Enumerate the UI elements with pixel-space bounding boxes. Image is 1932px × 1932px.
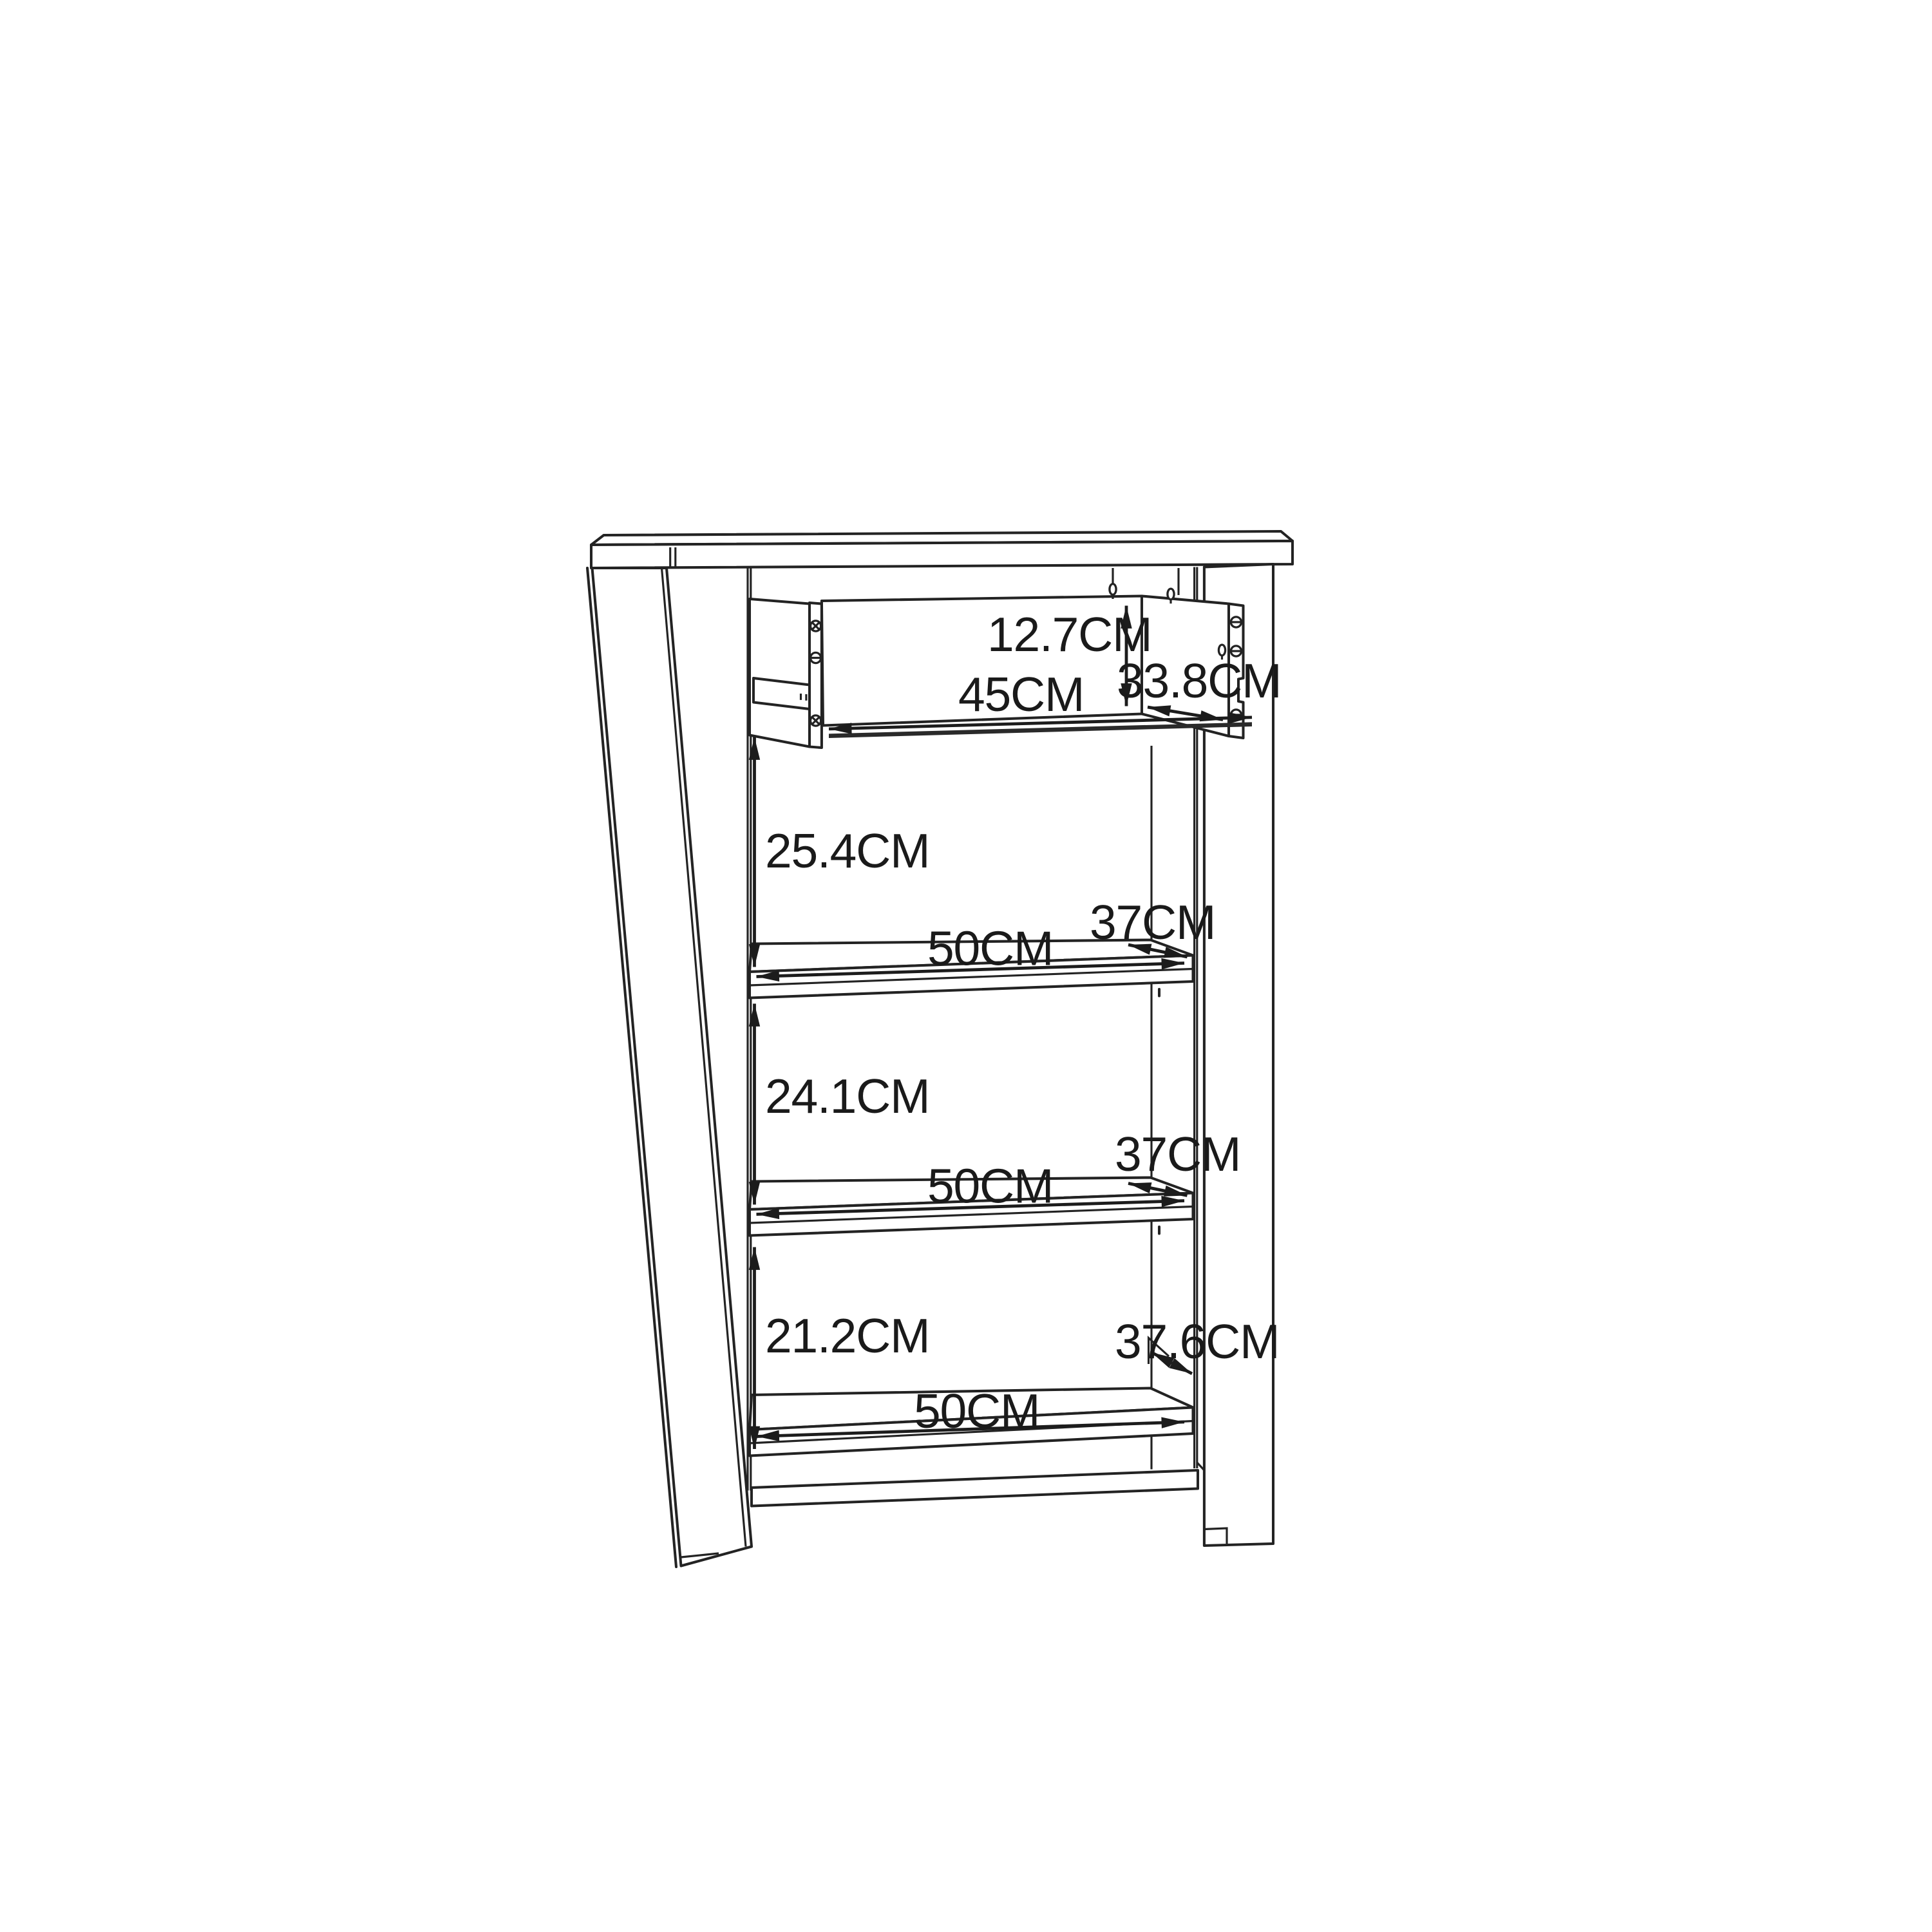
shelf2-depth-label: 37CM [1115, 1127, 1240, 1181]
gap2-label: 24.1CM [765, 1069, 929, 1123]
cabinet-diagram-svg: 12.7CM 45CM 33.8CM 25.4CM 50CM 37CM 24.1… [0, 0, 1932, 1932]
drawer-left-side [750, 599, 810, 747]
left-side-panel [587, 568, 752, 1567]
shelf2-width-label: 50CM [927, 1159, 1053, 1213]
shelf1-width-label: 50CM [927, 922, 1053, 976]
shelf3-depth-label: 37.6CM [1115, 1314, 1279, 1368]
drawer-width-label: 45CM [958, 667, 1084, 721]
gap3-label: 21.2CM [765, 1309, 929, 1363]
gap1-label: 25.4CM [765, 824, 929, 878]
shelf3-width-label: 50CM [914, 1384, 1039, 1438]
shelf1-depth-label: 37CM [1090, 895, 1215, 949]
base-panel [752, 1470, 1198, 1506]
drawer-depth-label: 33.8CM [1117, 654, 1281, 708]
cabinet-top-panel [591, 531, 1293, 568]
dimension-drawing: 12.7CM 45CM 33.8CM 25.4CM 50CM 37CM 24.1… [0, 0, 1932, 1932]
